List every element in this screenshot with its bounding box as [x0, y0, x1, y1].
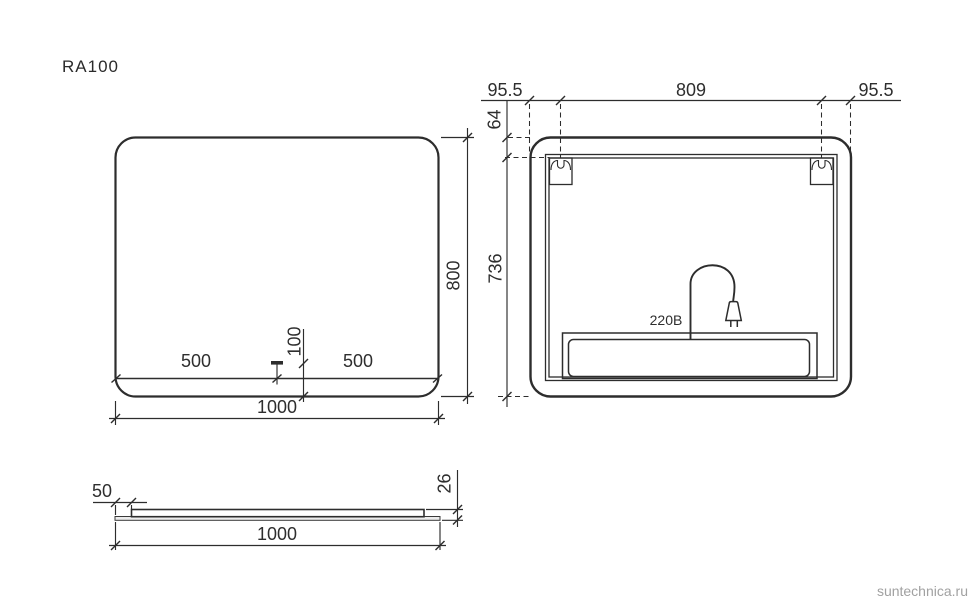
keyhole-slot [551, 161, 571, 171]
bracket-left [550, 158, 573, 185]
mirror-rear-outline [531, 138, 852, 397]
dim-label-left-half: 500 [166, 352, 226, 371]
dim-label-left-offset: 95.5 [475, 81, 535, 100]
plug-icon [726, 302, 742, 327]
dim-label-side-width: 1000 [247, 525, 307, 544]
mirror-front-outline [116, 138, 439, 397]
dim-label-sensor-height: 100 [286, 322, 305, 362]
driver-box-inner [569, 340, 810, 377]
dashed-extensions [498, 104, 851, 397]
rear-frame-outer [546, 155, 838, 381]
dim-label-height: 800 [445, 246, 464, 306]
mirror-backing-profile [132, 510, 425, 517]
model-title: RA100 [62, 57, 119, 77]
dim-label-width: 1000 [247, 398, 307, 417]
dim-label-bracket-to-bottom: 736 [487, 239, 506, 299]
dim-label-right-half: 500 [328, 352, 388, 371]
rear-frame-inner [549, 158, 834, 377]
touch-sensor-icon [271, 361, 283, 365]
bracket-right [811, 158, 834, 185]
technical-drawing-page: RA100 500 500 100 800 1000 95.5 809 95.5… [0, 0, 970, 607]
rear-view [481, 96, 901, 407]
dim-label-bracket-span: 809 [661, 81, 721, 100]
keyhole-slot [812, 161, 832, 171]
voltage-label: 220В [631, 312, 701, 329]
watermark: suntechnica.ru [768, 583, 968, 599]
dim-label-right-offset: 95.5 [846, 81, 906, 100]
front-view [109, 128, 474, 425]
dim-label-top-offset: 64 [486, 90, 505, 150]
dim-label-edge-inset: 50 [77, 482, 127, 501]
dim-label-thickness: 26 [436, 454, 455, 514]
